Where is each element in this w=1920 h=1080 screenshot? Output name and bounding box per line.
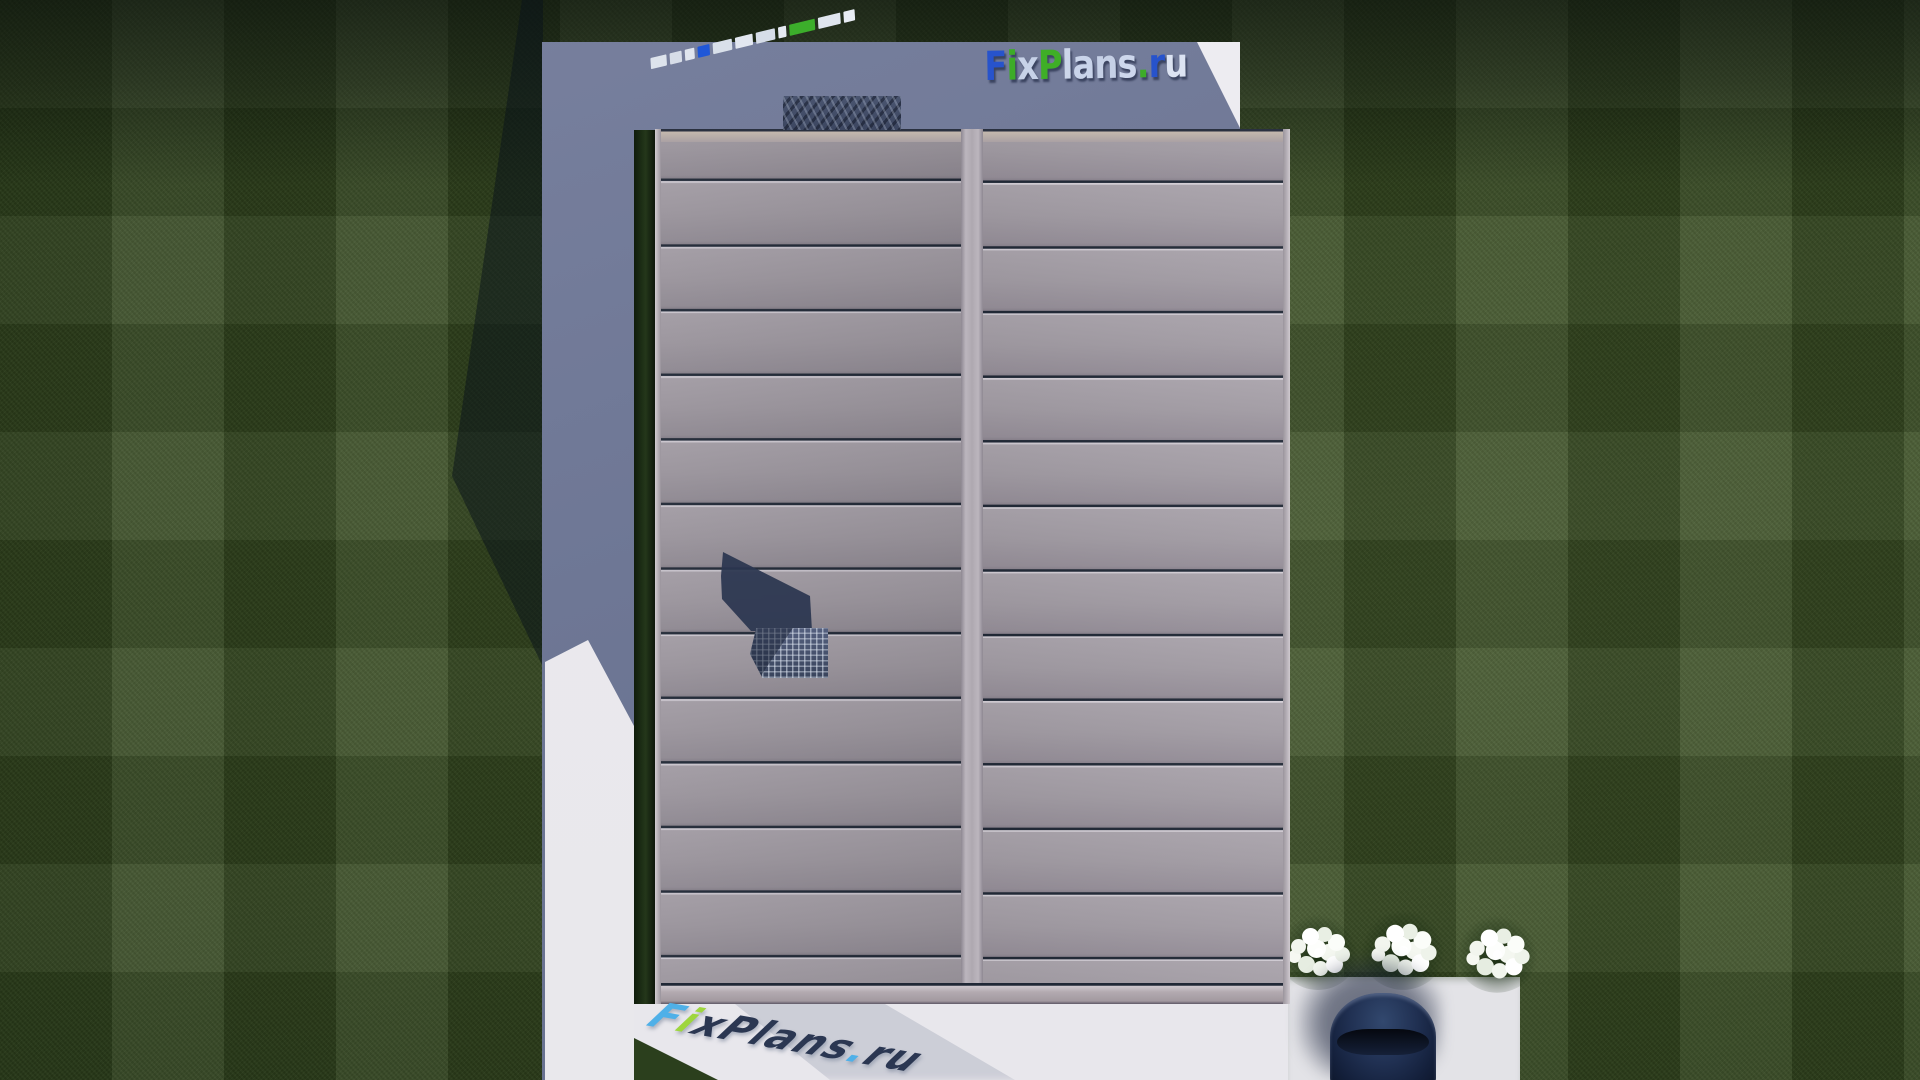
watermark-letter: u	[1164, 40, 1188, 86]
watermark-letter: P	[1038, 43, 1063, 89]
watermark-letter: F	[984, 44, 1007, 90]
car-windshield	[1337, 1029, 1429, 1055]
watermark-letter: x	[1017, 43, 1039, 89]
parked-car	[1304, 962, 1454, 1080]
main-watermark-text: FixPlans.ru	[984, 40, 1188, 90]
watermark-letter: i	[1006, 43, 1017, 89]
watermark-letter: l	[1061, 42, 1072, 88]
roof-edge-right	[1283, 129, 1290, 1004]
watermark-strip-block	[685, 48, 695, 61]
hedge-strip	[634, 130, 655, 1004]
watermark-letter: s	[1117, 41, 1137, 87]
car-body	[1330, 993, 1436, 1080]
flower-bush	[1464, 923, 1529, 984]
textured-mat	[783, 96, 901, 130]
roof-slope-right	[983, 142, 1283, 983]
watermark-letter: a	[1072, 42, 1095, 88]
roof-fascia-bottom	[661, 983, 1283, 1004]
roof-edge-left	[655, 129, 661, 1004]
roof-ridge	[961, 129, 983, 1004]
watermark-letter: n	[1094, 42, 1118, 88]
watermark-strip-block	[778, 26, 787, 39]
watermark-letter: r	[1148, 41, 1165, 87]
chimney-grate	[750, 628, 828, 678]
render-stage: FixPlans.ru FixPlans.ru	[0, 0, 1920, 1080]
roof-slope-left	[661, 142, 961, 983]
